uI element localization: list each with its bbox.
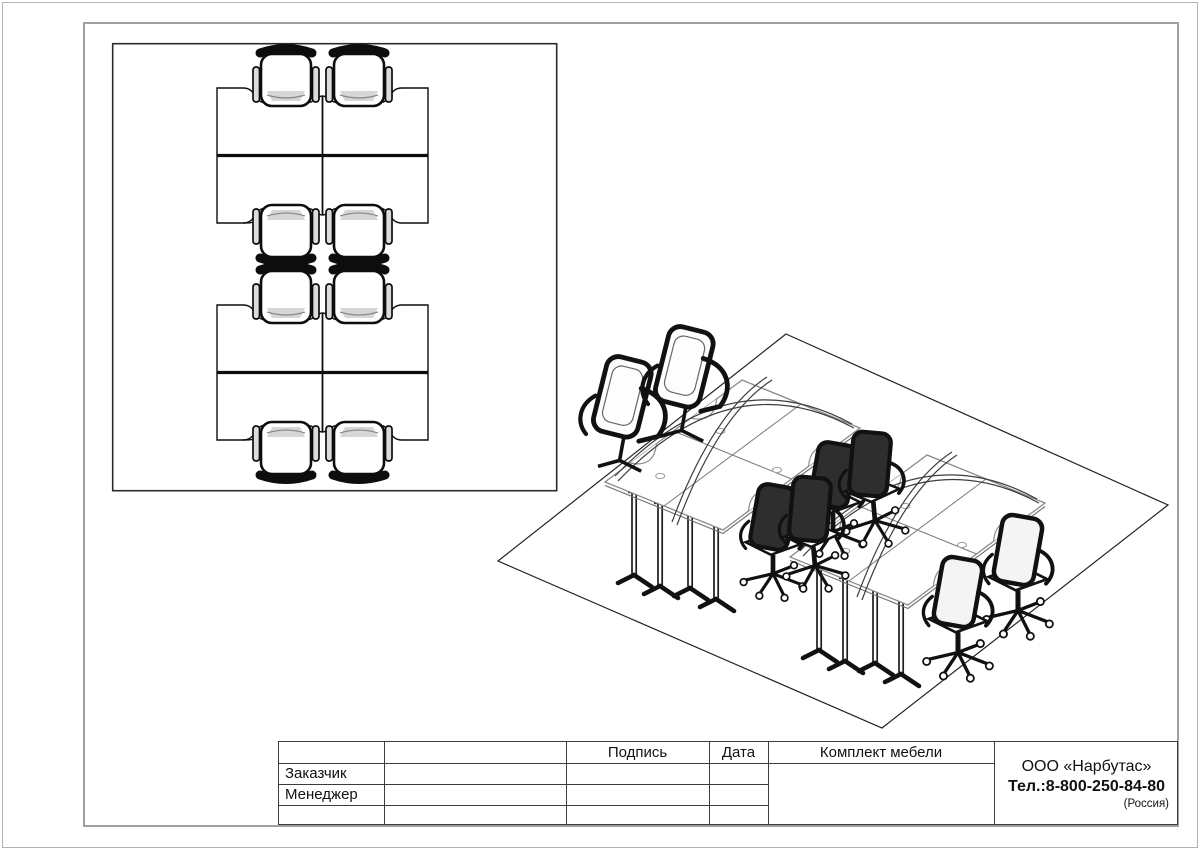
plan-chair xyxy=(253,422,319,480)
plan-chair xyxy=(326,422,392,480)
iso-view xyxy=(498,324,1168,728)
company-country: (Россия) xyxy=(1124,797,1179,811)
customer-label: Заказчик xyxy=(279,763,384,784)
plan-chair xyxy=(326,266,392,324)
furniture-set-header: Комплект мебели xyxy=(768,742,994,763)
drawing-canvas xyxy=(0,0,1200,850)
plan-view xyxy=(113,44,557,491)
title-block-divider xyxy=(279,805,768,806)
company-phone: Тел.:8-800-250-84-80 xyxy=(1008,777,1165,797)
date-header: Дата xyxy=(709,742,768,763)
plan-chair xyxy=(253,266,319,324)
plan-chair xyxy=(253,205,319,263)
plan-cluster-b xyxy=(217,305,428,440)
page-sheet: Подпись Дата Комплект мебели Заказчик Ме… xyxy=(0,0,1200,850)
customer-value-cell xyxy=(384,763,566,784)
plan-chair xyxy=(253,49,319,107)
manager-value-cell xyxy=(384,784,566,805)
company-info: ООО «Нарбутас» Тел.:8-800-250-84-80 (Рос… xyxy=(994,742,1179,826)
plan-chair xyxy=(326,49,392,107)
signature-header: Подпись xyxy=(566,742,709,763)
company-name: ООО «Нарбутас» xyxy=(1022,757,1152,777)
title-block: Подпись Дата Комплект мебели Заказчик Ме… xyxy=(278,741,1178,825)
plan-cluster-a xyxy=(217,88,428,223)
manager-label: Менеджер xyxy=(279,784,384,805)
plan-chair xyxy=(326,205,392,263)
